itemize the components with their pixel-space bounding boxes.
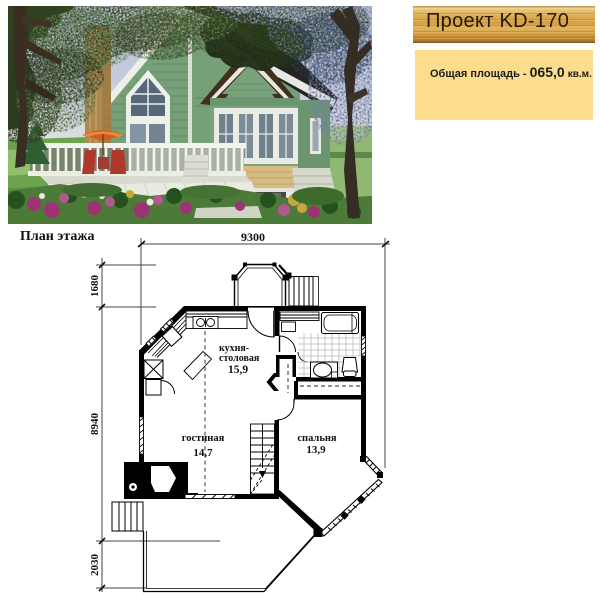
svg-text:2030: 2030 [89,554,101,577]
svg-text:13,9: 13,9 [306,444,326,456]
svg-text:15,9: 15,9 [228,364,248,376]
svg-text:8940: 8940 [89,413,101,436]
svg-text:столовая: столовая [219,353,260,364]
svg-text:спальня: спальня [297,433,337,444]
svg-text:9300: 9300 [241,230,265,244]
svg-text:1680: 1680 [89,275,101,298]
svg-text:гостиная: гостиная [182,433,225,444]
svg-text:14,7: 14,7 [193,447,213,459]
